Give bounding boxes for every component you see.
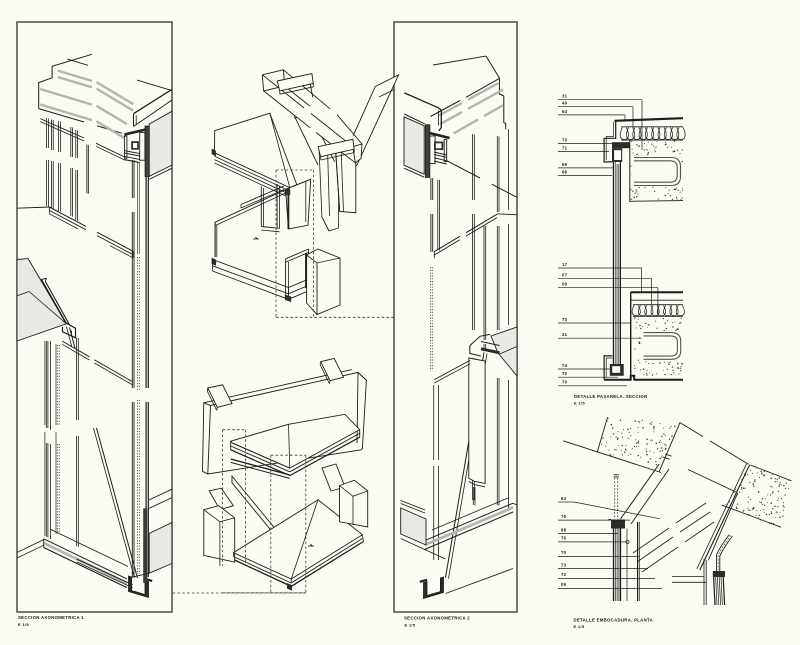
svg-text:31: 31 [562,94,568,99]
svg-text:E 1/5: E 1/5 [18,622,29,627]
svg-text:07: 07 [562,273,568,278]
svg-text:74: 74 [562,363,568,368]
svg-text:DETALLE PASARELA. SECCION: DETALLE PASARELA. SECCION [574,394,647,399]
svg-text:71: 71 [562,145,568,150]
svg-text:49: 49 [562,101,568,106]
svg-text:69: 69 [562,162,568,167]
svg-text:68: 68 [561,527,567,532]
svg-text:73: 73 [561,562,567,567]
svg-text:76: 76 [561,536,567,541]
svg-text:70: 70 [562,137,568,142]
svg-text:68: 68 [562,169,568,174]
svg-text:SECCION AXONOMETRICA 2: SECCION AXONOMETRICA 2 [404,616,470,621]
svg-text:DETALLE EMBOCADURA. PLANTA: DETALLE EMBOCADURA. PLANTA [574,618,654,623]
svg-text:E 1/5: E 1/5 [574,624,585,629]
svg-text:SECCION AXONOMETRICA 1: SECCION AXONOMETRICA 1 [18,615,84,620]
svg-text:70: 70 [562,380,568,385]
svg-text:72: 72 [561,572,567,577]
svg-text:70: 70 [561,550,567,555]
svg-text:E 1/5: E 1/5 [574,401,585,406]
svg-text:64: 64 [562,109,568,114]
svg-text:63: 63 [561,496,567,501]
svg-text:31: 31 [562,332,568,337]
svg-text:72: 72 [562,371,568,376]
svg-text:09: 09 [562,282,568,287]
svg-text:17: 17 [562,262,568,267]
svg-text:E 1/5: E 1/5 [405,623,416,628]
svg-text:09: 09 [561,582,567,587]
svg-text:73: 73 [562,317,568,322]
svg-text:75: 75 [561,514,567,519]
